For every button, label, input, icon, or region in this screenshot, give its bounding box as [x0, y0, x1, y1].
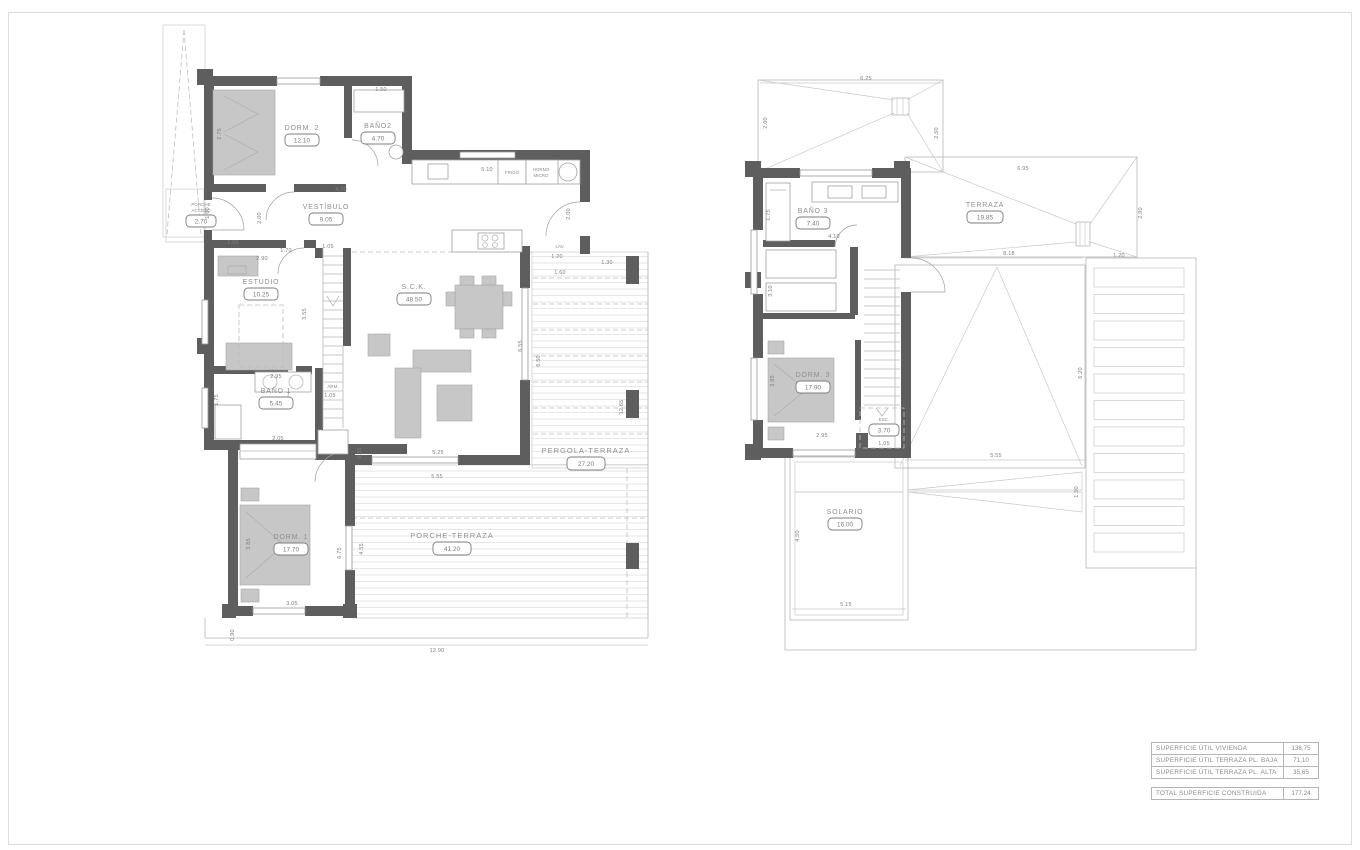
table-row: SUPERFICIE ÚTIL TERRAZA PL. BAJA 71,10 — [1152, 755, 1318, 767]
surface-table-total: TOTAL SUPERFICIE CONSTRUIDA 177,24 — [1151, 787, 1319, 800]
table-row: SUPERFICIE ÚTIL TERRAZA PL. ALTA 35,65 — [1152, 767, 1318, 778]
row-value: 138,75 — [1284, 743, 1318, 754]
table-row: SUPERFICIE ÚTIL VIVIENDA 138,75 — [1152, 743, 1318, 755]
plan-sheet: DORM. 2 12.10 BAÑO2 4.70 PORCHE ACCESO 2… — [0, 0, 1360, 850]
surface-table: SUPERFICIE ÚTIL VIVIENDA 138,75 SUPERFIC… — [1151, 742, 1319, 800]
table-row-total: TOTAL SUPERFICIE CONSTRUIDA 177,24 — [1152, 788, 1318, 799]
page-frame — [8, 12, 1352, 845]
surface-table-main: SUPERFICIE ÚTIL VIVIENDA 138,75 SUPERFIC… — [1151, 742, 1319, 779]
row-label: SUPERFICIE ÚTIL TERRAZA PL. BAJA — [1152, 755, 1284, 766]
row-label: SUPERFICIE ÚTIL TERRAZA PL. ALTA — [1152, 767, 1284, 778]
row-label: TOTAL SUPERFICIE CONSTRUIDA — [1152, 788, 1284, 799]
row-value: 71,10 — [1284, 755, 1318, 766]
row-value: 35,65 — [1284, 767, 1318, 778]
row-label: SUPERFICIE ÚTIL VIVIENDA — [1152, 743, 1284, 754]
row-value: 177,24 — [1284, 788, 1318, 799]
